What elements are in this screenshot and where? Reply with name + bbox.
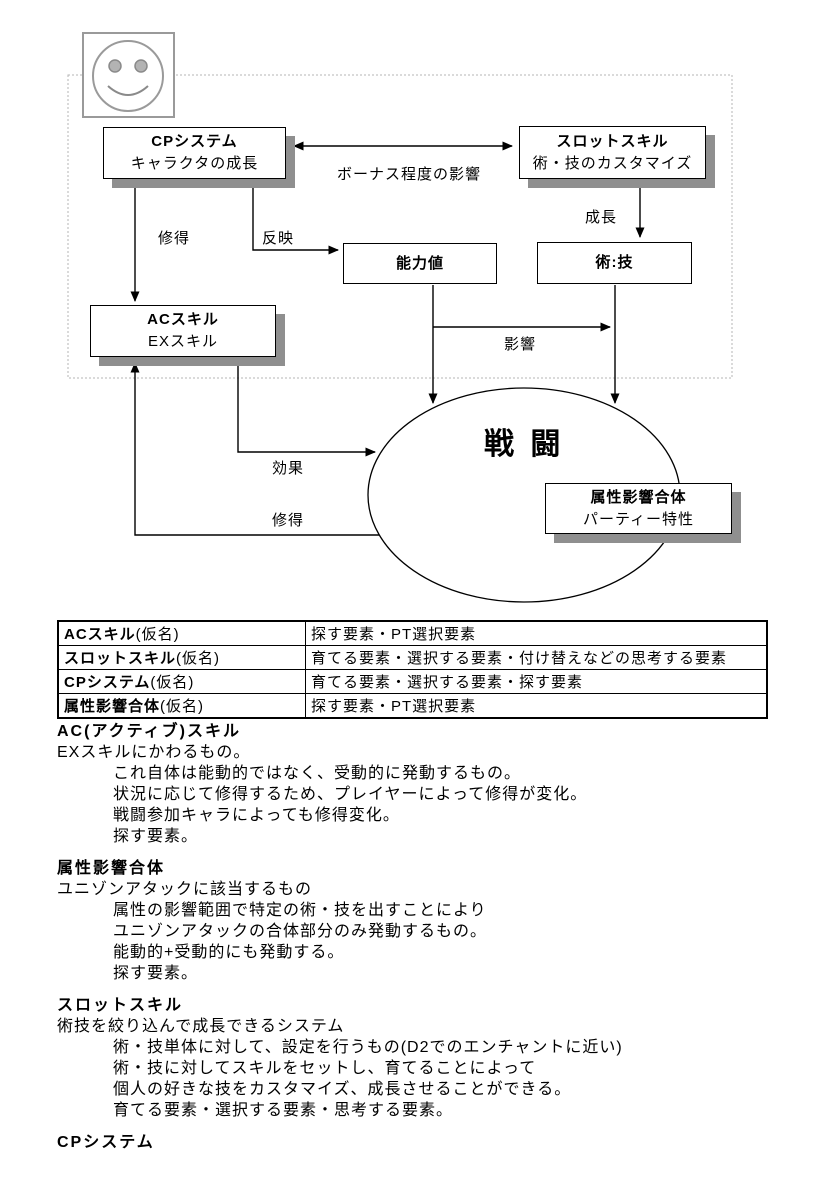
row-name: CPシステム xyxy=(64,674,150,691)
row-term-cell: ACスキル(仮名) xyxy=(58,621,306,646)
row-desc: 育てる要素・選択する要素・探す要素 xyxy=(306,670,768,694)
table-row: ACスキル(仮名) 探す要素・PT選択要素 xyxy=(58,621,767,646)
edge-label-bonus: ボーナス程度の影響 xyxy=(337,163,481,184)
row-term-cell: 属性影響合体(仮名) xyxy=(58,694,306,719)
section-slot-skill: スロットスキル 術技を絞り込んで成長できるシステム 術・技単体に対して、設定を行… xyxy=(57,995,797,1121)
section-line: 術・技に対してスキルをセットし、育てることによって xyxy=(57,1058,797,1079)
section-line: 術・技単体に対して、設定を行うもの(D2でのエンチャントに近い) xyxy=(57,1037,797,1058)
section-line: 戦闘参加キャラによっても修得変化。 xyxy=(57,805,797,826)
row-term-cell: スロットスキル(仮名) xyxy=(58,646,306,670)
row-suffix: (仮名) xyxy=(160,698,204,715)
section-cp-system: CPシステム xyxy=(57,1132,797,1153)
section-line: 探す要素。 xyxy=(57,963,797,984)
smiley-face-drawing xyxy=(84,34,173,116)
section-line: 属性の影響範囲で特定の術・技を出すことにより xyxy=(57,900,797,921)
section-ac-skill: AC(アクティブ)スキル EXスキルにかわるもの。 これ自体は能動的ではなく、受… xyxy=(57,721,797,847)
node-cp-system: CPシステム キャラクタの成長 xyxy=(103,127,286,179)
section-attribute-union: 属性影響合体 ユニゾンアタックに該当するもの 属性の影響範囲で特定の術・技を出す… xyxy=(57,858,797,984)
section-intro: ユニゾンアタックに該当するもの xyxy=(57,879,797,900)
battle-label: 戦 闘 xyxy=(484,419,564,463)
section-heading: AC(アクティブ)スキル xyxy=(57,721,797,742)
design-document-page: CPシステム キャラクタの成長 スロットスキル 術・技のカスタマイズ 能力値 術… xyxy=(0,0,835,1195)
section-intro: 術技を絞り込んで成長できるシステム xyxy=(57,1016,797,1037)
edge-label-influence: 影響 xyxy=(504,333,536,354)
edge-label-effect: 効果 xyxy=(272,457,304,478)
node-subtitle: 術・技のカスタマイズ xyxy=(533,153,693,175)
row-term-cell: CPシステム(仮名) xyxy=(58,670,306,694)
node-title: スロットスキル xyxy=(556,131,668,153)
edge-ac-to-battle xyxy=(238,358,375,452)
section-line: ユニゾンアタックの合体部分のみ発動するもの。 xyxy=(57,921,797,942)
node-title: 能力値 xyxy=(396,253,444,275)
notes-text-block: AC(アクティブ)スキル EXスキルにかわるもの。 これ自体は能動的ではなく、受… xyxy=(57,721,797,1164)
section-heading: スロットスキル xyxy=(57,995,797,1016)
node-title: ACスキル xyxy=(147,309,219,331)
smiley-face-icon xyxy=(82,32,175,118)
node-title: 属性影響合体 xyxy=(590,487,686,509)
summary-table: ACスキル(仮名) 探す要素・PT選択要素 スロットスキル(仮名) 育てる要素・… xyxy=(57,620,768,719)
table-row: 属性影響合体(仮名) 探す要素・PT選択要素 xyxy=(58,694,767,719)
node-ac-skill: ACスキル EXスキル xyxy=(90,305,276,357)
table-row: CPシステム(仮名) 育てる要素・選択する要素・探す要素 xyxy=(58,670,767,694)
node-subtitle: パーティー特性 xyxy=(583,509,694,531)
node-title: 術:技 xyxy=(596,252,634,274)
row-suffix: (仮名) xyxy=(150,674,194,691)
node-attribute-union: 属性影響合体 パーティー特性 xyxy=(545,483,732,534)
section-heading: CPシステム xyxy=(57,1132,797,1153)
row-desc: 探す要素・PT選択要素 xyxy=(306,694,768,719)
section-line: 探す要素。 xyxy=(57,826,797,847)
edge-battle-to-ac xyxy=(135,363,379,535)
node-subtitle: キャラクタの成長 xyxy=(131,153,258,175)
node-subtitle: EXスキル xyxy=(148,331,218,353)
edge-label-learn-bottom: 修得 xyxy=(272,509,304,530)
table-row: スロットスキル(仮名) 育てる要素・選択する要素・付け替えなどの思考する要素 xyxy=(58,646,767,670)
smiley-right-eye xyxy=(135,60,147,72)
section-intro: EXスキルにかわるもの。 xyxy=(57,742,797,763)
section-line: これ自体は能動的ではなく、受動的に発動するもの。 xyxy=(57,763,797,784)
row-suffix: (仮名) xyxy=(176,650,220,667)
edge-label-learn-top: 修得 xyxy=(158,227,190,248)
edge-label-reflect: 反映 xyxy=(262,227,294,248)
row-name: 属性影響合体 xyxy=(64,698,160,715)
row-desc: 探す要素・PT選択要素 xyxy=(306,621,768,646)
section-line: 状況に応じて修得するため、プレイヤーによって修得が変化。 xyxy=(57,784,797,805)
smiley-mouth xyxy=(108,86,148,95)
node-arts-skills: 術:技 xyxy=(537,242,692,284)
row-desc: 育てる要素・選択する要素・付け替えなどの思考する要素 xyxy=(306,646,768,670)
node-ability-value: 能力値 xyxy=(343,243,497,284)
row-suffix: (仮名) xyxy=(136,626,180,643)
section-line: 育てる要素・選択する要素・思考する要素。 xyxy=(57,1100,797,1121)
section-line: 個人の好きな技をカスタマイズ、成長させることができる。 xyxy=(57,1079,797,1100)
section-heading: 属性影響合体 xyxy=(57,858,797,879)
node-title: CPシステム xyxy=(151,131,237,153)
node-slot-skill: スロットスキル 術・技のカスタマイズ xyxy=(519,126,706,179)
row-name: スロットスキル xyxy=(64,650,176,667)
section-line: 能動的+受動的にも発動する。 xyxy=(57,942,797,963)
row-name: ACスキル xyxy=(64,626,136,643)
edge-label-growth: 成長 xyxy=(585,206,617,227)
smiley-left-eye xyxy=(109,60,121,72)
